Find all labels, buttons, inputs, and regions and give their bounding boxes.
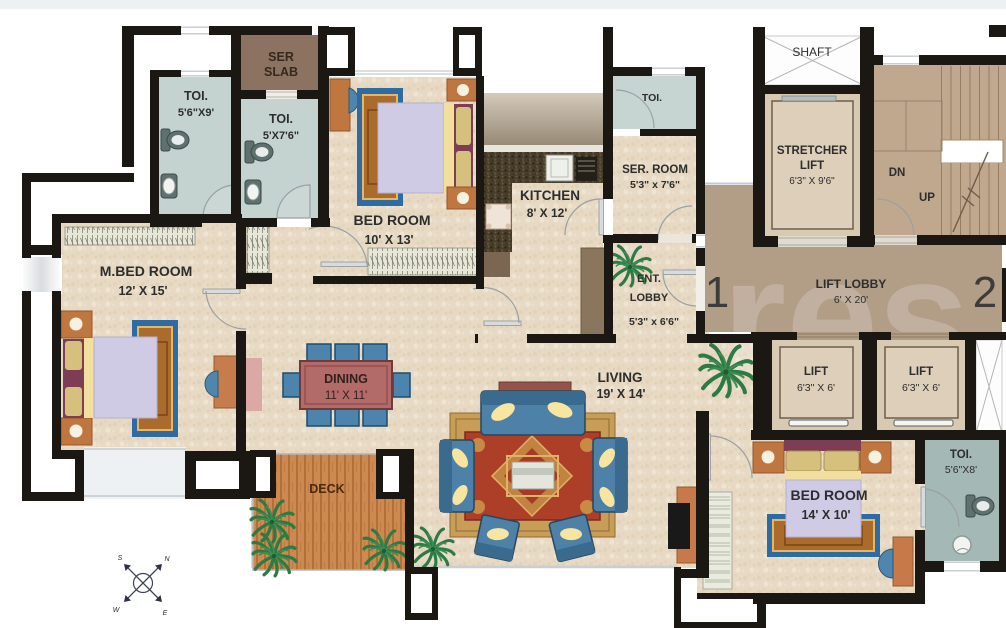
svg-text:LIFT LOBBY: LIFT LOBBY	[816, 277, 887, 291]
svg-text:STRETCHER: STRETCHER	[777, 145, 848, 157]
svg-text:5'6"X8': 5'6"X8'	[945, 464, 977, 476]
svg-text:5'3" x 6'6": 5'3" x 6'6"	[629, 316, 679, 328]
svg-text:TOI.: TOI.	[184, 89, 208, 103]
svg-text:19' X 14': 19' X 14'	[596, 387, 645, 401]
svg-text:TOI.: TOI.	[269, 112, 293, 126]
svg-text:5'3" x 7'6": 5'3" x 7'6"	[630, 179, 680, 191]
svg-text:DINING: DINING	[324, 372, 368, 386]
svg-text:E: E	[163, 610, 168, 617]
svg-text:10' X 13': 10' X 13'	[364, 233, 413, 247]
svg-text:UP: UP	[919, 192, 935, 204]
svg-text:DECK: DECK	[309, 482, 344, 496]
svg-text:SER. ROOM: SER. ROOM	[622, 164, 688, 176]
svg-text:LIVING: LIVING	[597, 370, 642, 385]
svg-text:TOI.: TOI.	[950, 449, 972, 461]
svg-text:8' X 12': 8' X 12'	[527, 206, 568, 220]
svg-text:5'6"X9': 5'6"X9'	[178, 107, 215, 119]
svg-text:SER: SER	[268, 50, 294, 64]
svg-text:2: 2	[973, 268, 997, 317]
svg-text:DN: DN	[889, 167, 906, 179]
svg-text:6'3" X 6': 6'3" X 6'	[797, 382, 835, 394]
svg-text:6'3" X 9'6": 6'3" X 9'6"	[789, 176, 835, 187]
svg-text:SLAB: SLAB	[264, 65, 298, 79]
svg-text:LIFT: LIFT	[909, 366, 933, 378]
svg-text:BED ROOM: BED ROOM	[791, 487, 868, 503]
svg-text:12' X 15': 12' X 15'	[118, 284, 167, 298]
svg-text:LIFT: LIFT	[800, 160, 824, 172]
svg-text:11' X 11': 11' X 11'	[325, 390, 367, 402]
svg-text:6'3" X 6': 6'3" X 6'	[902, 382, 940, 394]
svg-text:TOI.: TOI.	[642, 92, 662, 104]
svg-text:ENT.: ENT.	[637, 273, 661, 285]
svg-text:14' X 10': 14' X 10'	[801, 508, 850, 522]
svg-text:LIFT: LIFT	[804, 366, 828, 378]
svg-text:1: 1	[705, 268, 729, 317]
svg-text:KITCHEN: KITCHEN	[520, 188, 580, 203]
svg-text:6' X 20': 6' X 20'	[834, 294, 868, 306]
svg-text:BED ROOM: BED ROOM	[354, 212, 431, 228]
svg-text:LOBBY: LOBBY	[630, 292, 669, 304]
svg-text:5'X7'6": 5'X7'6"	[263, 130, 299, 142]
svg-text:S: S	[118, 555, 123, 562]
svg-text:SHAFT: SHAFT	[792, 45, 832, 59]
svg-text:M.BED ROOM: M.BED ROOM	[100, 263, 193, 279]
